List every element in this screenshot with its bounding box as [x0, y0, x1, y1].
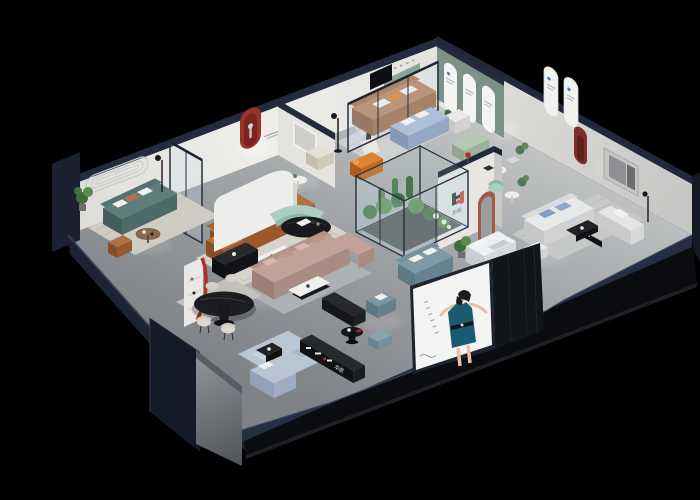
showroom-render: 华凯 [0, 0, 700, 500]
red-logo-mark [324, 358, 326, 361]
west-corner-pillar [52, 152, 80, 252]
dining-chair [226, 274, 239, 282]
dining-chair [206, 282, 219, 290]
showroom-svg: 华凯 [0, 0, 700, 500]
